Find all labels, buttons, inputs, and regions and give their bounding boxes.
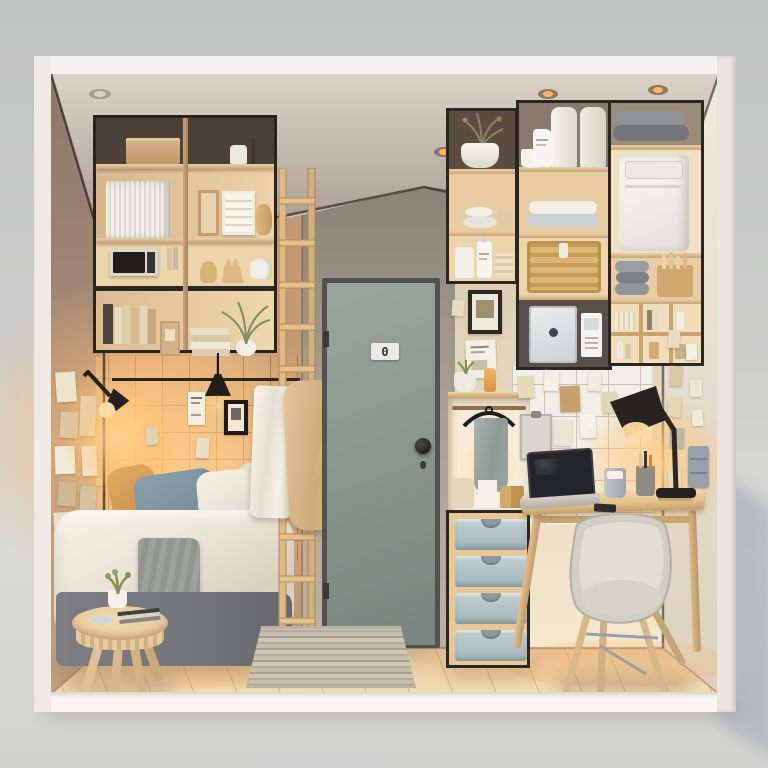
orange-bottle (484, 368, 496, 392)
coat-niche (448, 398, 530, 512)
white-pitcher (250, 258, 272, 280)
framed-photo (468, 290, 502, 334)
utensil (662, 255, 666, 269)
drawer (455, 556, 527, 587)
poster-text-line (191, 397, 202, 399)
frame-right (717, 56, 736, 712)
box-file-label (165, 329, 175, 341)
keypad-device (581, 313, 602, 357)
appliance-seam (625, 185, 681, 188)
door-frame: 0 (322, 278, 440, 648)
phone (594, 503, 616, 512)
picture-photo (231, 408, 241, 420)
small-bottle (617, 342, 623, 359)
utensil (669, 252, 673, 269)
right-shelf-column-b (516, 100, 612, 370)
succulent (456, 360, 476, 374)
white-canister (230, 145, 247, 164)
folded-towels (527, 201, 599, 231)
photo-image (476, 300, 494, 318)
small-wood-frame (198, 190, 219, 236)
safe-dial (549, 328, 558, 337)
white-storage-box (106, 181, 170, 238)
small-figurine (649, 342, 659, 359)
pinned-note (544, 370, 560, 392)
gray-container (615, 283, 649, 295)
frame-left (34, 56, 51, 712)
white-plant-pot (461, 143, 499, 168)
microwave-panel (147, 252, 155, 273)
drawer-handle (481, 630, 501, 639)
left-shelf-cabinet (93, 115, 277, 353)
utensil (676, 256, 680, 269)
cardboard-box (126, 138, 180, 164)
jug-label-line (536, 144, 546, 146)
white-grid-frame (222, 191, 255, 235)
screen-reflection (535, 458, 566, 476)
mini-fridge-appliance (619, 155, 689, 251)
basket-buckle (559, 243, 568, 258)
box-file (160, 321, 180, 356)
door-hinge (323, 331, 329, 347)
desk-lamp (598, 382, 708, 504)
utensil (683, 253, 687, 269)
mini-basket (495, 253, 513, 277)
microwave (110, 249, 158, 276)
book (140, 306, 147, 344)
folded-blanket (613, 125, 689, 141)
framed-picture (224, 400, 248, 435)
bottle-label-line (479, 258, 487, 260)
frame-text-line (471, 351, 485, 353)
binder (103, 304, 113, 344)
book (123, 305, 130, 344)
beige-cup (499, 209, 512, 228)
folded-towel (529, 201, 597, 214)
hanging-card (145, 428, 158, 446)
safe-box (529, 306, 577, 363)
pinned-note (451, 300, 464, 317)
miniature-room-diorama: 0 (0, 0, 768, 768)
frame-text-line (471, 346, 489, 349)
gray-container (615, 261, 649, 272)
small-basket (615, 312, 635, 330)
folded-blanket (615, 111, 685, 125)
pump-top (481, 236, 487, 242)
book (131, 308, 139, 344)
stacked-book (192, 349, 230, 356)
drawer (455, 519, 527, 550)
bell-ornament (200, 261, 217, 283)
jug-label-line (536, 139, 548, 141)
poster-white (188, 392, 205, 425)
gray-container-stack (615, 261, 651, 297)
frame-top (34, 56, 736, 74)
door-keyhole (420, 461, 426, 469)
small-book (647, 310, 652, 330)
wall-rail (112, 378, 300, 381)
clipboard-clip (531, 411, 541, 418)
right-shelf-column-a (446, 108, 518, 284)
device-buttons (585, 335, 598, 349)
dried-plant (457, 113, 507, 147)
door-panel: 0 (327, 283, 435, 645)
book (173, 247, 178, 270)
small-book (653, 312, 658, 330)
microwave-door (113, 252, 145, 273)
hook-tool (252, 138, 255, 164)
pinned-note (686, 344, 698, 361)
frame-bottom (34, 692, 736, 712)
book (167, 248, 172, 270)
drawer-handle (481, 593, 501, 602)
door-number: 0 (381, 345, 388, 359)
device-screen (584, 318, 599, 330)
door-hinge (323, 583, 329, 599)
rug (246, 626, 416, 688)
drawer-handle (481, 519, 501, 528)
utensil-box (657, 265, 693, 297)
pinned-note (668, 330, 681, 349)
white-box (478, 480, 497, 508)
poster-text-line (191, 402, 200, 404)
white-bin (551, 107, 577, 167)
pitcher-jug (533, 129, 553, 167)
door-number-plate: 0 (371, 343, 399, 360)
small-bottle (677, 312, 684, 330)
appliance-panel (625, 161, 683, 179)
shelf-divider (183, 118, 188, 350)
stone (463, 216, 497, 228)
folded-towel (527, 214, 599, 227)
beige-canister (453, 478, 474, 508)
desk-chair (546, 514, 698, 706)
pump-bottle (477, 241, 492, 278)
white-bin (580, 107, 606, 167)
hanging-card (195, 438, 209, 459)
stool-plant (102, 568, 134, 594)
small-dish (90, 616, 114, 624)
pinned-note (517, 376, 534, 399)
gray-container (616, 272, 649, 283)
succulent-pot (454, 372, 476, 392)
book (161, 246, 166, 270)
wicker-basket (527, 241, 601, 293)
small-figurine (625, 344, 631, 359)
door-knob (415, 438, 431, 454)
bottle-label-line (479, 253, 489, 255)
vase-plant (216, 300, 274, 344)
right-shelf-column-c (608, 100, 704, 366)
pendant-cord (217, 353, 219, 375)
white-canister (455, 247, 474, 278)
drawer-handle (481, 556, 501, 565)
stone-stack (463, 207, 497, 229)
wood-vase (255, 204, 272, 235)
poster-text-line (191, 414, 201, 416)
book (115, 307, 122, 344)
book (148, 309, 156, 344)
